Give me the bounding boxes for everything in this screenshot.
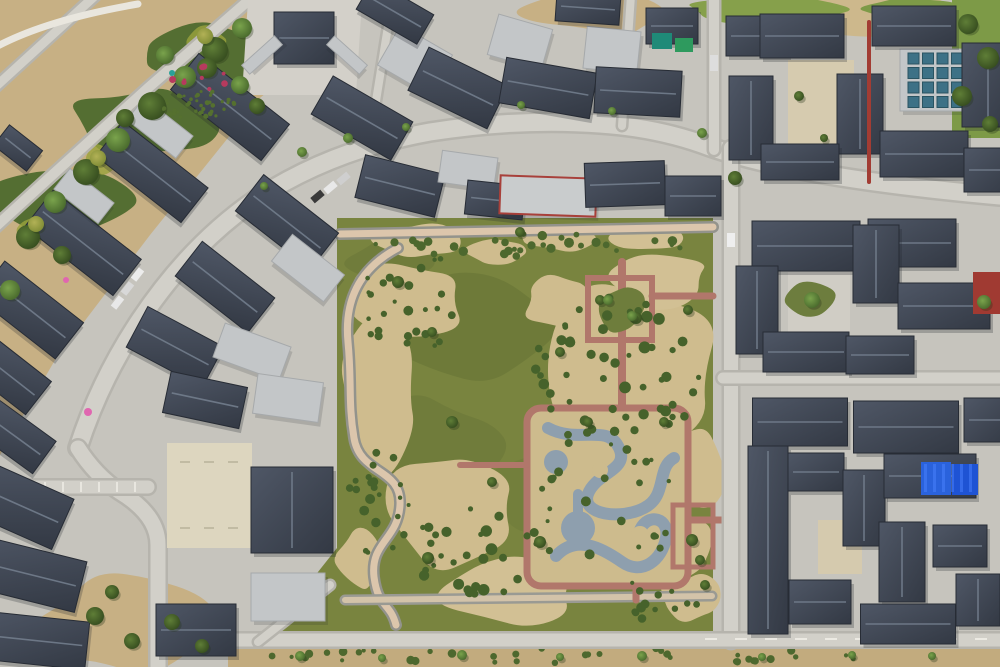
dumpster-green	[675, 38, 693, 52]
park-shrubs	[587, 350, 596, 359]
tree	[695, 555, 705, 565]
skylight-grid	[952, 53, 963, 64]
tree	[758, 653, 766, 661]
nursery-rows	[162, 106, 166, 110]
maze-shrubs	[662, 530, 669, 537]
park-shrubs	[463, 552, 471, 560]
tree	[848, 651, 856, 659]
park-shrubs	[432, 531, 439, 538]
aerial-photograph-town-park	[0, 0, 1000, 667]
garden-bushes-north	[564, 238, 574, 248]
hall-flat-red-trim	[499, 175, 596, 216]
roadside-shrubs-bottom	[734, 658, 741, 665]
park-shrubs	[653, 313, 665, 325]
nursery-rows	[232, 101, 236, 105]
tree	[487, 477, 497, 487]
park-shrubs	[535, 345, 543, 353]
maze-island	[631, 526, 649, 544]
park-shrubs	[530, 528, 539, 537]
park-shrubs	[424, 523, 433, 532]
skylight-grid	[937, 68, 948, 79]
tree	[422, 552, 434, 564]
park-shrubs	[471, 590, 479, 598]
park-shrubs	[638, 614, 647, 623]
skylight-grid	[923, 68, 934, 79]
skylight-grid	[908, 53, 919, 64]
park-shrubs	[693, 601, 700, 608]
tree	[164, 614, 180, 630]
tree	[977, 47, 999, 69]
park-shrubs	[648, 344, 655, 351]
park-shrubs	[375, 332, 383, 340]
skylight-grid	[937, 97, 948, 108]
garden-bushes-north	[527, 241, 535, 249]
roadside-shrubs-bottom	[514, 658, 520, 664]
park-shrubs	[365, 276, 370, 281]
pink-umbrella	[63, 277, 69, 283]
maze-shrubs	[610, 427, 619, 436]
roadside-shrubs-bottom	[340, 658, 344, 662]
roadside-shrubs-bottom	[552, 660, 558, 666]
maze-shrubs	[547, 506, 552, 511]
garden-bushes-north	[592, 238, 601, 247]
skylight-grid	[908, 97, 919, 108]
tree	[515, 227, 525, 237]
park-shrubs	[403, 306, 413, 316]
park-shrubs	[696, 375, 701, 380]
maze-shrubs	[581, 496, 591, 506]
roof-top-edge	[555, 0, 621, 25]
tree	[90, 150, 106, 166]
tree	[260, 182, 268, 190]
park-shrubs	[636, 587, 644, 595]
park-shrubs	[404, 340, 411, 347]
garden-bushes-north	[450, 242, 459, 251]
park-shrubs	[499, 554, 507, 562]
nursery-rows	[198, 111, 202, 115]
roadside-shrubs-bottom	[735, 653, 740, 658]
tree	[952, 86, 972, 106]
park-shrubs	[486, 543, 498, 555]
park-shrubs	[610, 358, 619, 367]
park-shrubs	[556, 335, 566, 345]
tree	[608, 107, 616, 115]
park-shrubs	[619, 382, 631, 394]
park-shrubs	[657, 405, 665, 413]
roadside-shrubs-bottom	[745, 656, 752, 663]
park-shrubs	[371, 518, 380, 527]
park-shrubs	[626, 353, 631, 358]
park-shrubs	[353, 486, 361, 494]
park-shrubs	[672, 606, 678, 612]
roadside-shrubs-bottom	[597, 651, 603, 657]
nursery-rows	[172, 108, 177, 113]
park-shrubs	[655, 591, 662, 598]
tree	[197, 28, 213, 44]
maze-shrubs	[623, 445, 632, 454]
tree	[659, 417, 669, 427]
park-shrubs	[583, 428, 591, 436]
park-shrubs	[400, 531, 407, 538]
nursery-rows	[201, 107, 205, 111]
park-shrubs	[368, 331, 374, 337]
maze-shrubs	[609, 442, 613, 446]
plaza-west	[167, 443, 252, 548]
park-shrubs	[630, 581, 634, 585]
tree	[820, 134, 828, 142]
tree	[728, 171, 742, 185]
roadside-shrubs-bottom	[585, 651, 591, 657]
park-shrubs	[661, 372, 671, 382]
park-shrubs	[372, 449, 380, 457]
tree	[697, 128, 707, 138]
tree	[232, 18, 252, 38]
flower-bushes	[222, 72, 226, 76]
garden-bushes-north	[668, 236, 678, 246]
skylight-grid	[923, 97, 934, 108]
garden-bushes-north	[546, 244, 555, 253]
tree	[295, 651, 305, 661]
tree	[637, 651, 647, 661]
park-shrubs	[546, 547, 553, 554]
park-shrubs	[609, 405, 617, 413]
garden-bushes-north	[459, 247, 468, 256]
garden-bushes-north	[614, 248, 619, 253]
park-shrubs	[562, 322, 568, 328]
tree	[378, 654, 386, 662]
skylight-grid	[908, 82, 919, 93]
roadside-shrubs-bottom	[356, 649, 362, 655]
tree	[106, 128, 130, 152]
nursery-rows	[221, 100, 224, 103]
roadside-shrubs-bottom	[269, 653, 276, 660]
park-shrubs	[380, 279, 387, 286]
nursery-rows	[169, 112, 173, 116]
garden-bushes-north	[374, 242, 378, 246]
tree	[683, 305, 693, 315]
flower-bushes	[207, 87, 211, 91]
roadside-shrubs-bottom	[411, 657, 419, 665]
tree	[0, 280, 20, 300]
park-shrubs	[366, 474, 372, 480]
nursery-rows	[180, 107, 183, 110]
roadside-shrubs-bottom	[752, 657, 759, 664]
nursery-rows	[186, 102, 190, 106]
park-shrubs	[680, 412, 689, 421]
maze-shrubs	[631, 459, 637, 465]
tree	[446, 416, 458, 428]
roadside-shrubs-bottom	[371, 648, 377, 654]
flower-bushes	[201, 63, 207, 69]
tree	[427, 327, 437, 337]
tree	[583, 417, 593, 427]
park-shrubs	[689, 388, 697, 396]
nursery-rows	[200, 90, 203, 93]
park-shrubs	[398, 496, 402, 500]
park-shrubs	[547, 405, 554, 412]
park-shrubs	[448, 311, 456, 319]
park-shrubs	[494, 512, 503, 521]
garden-bushes-north	[409, 237, 417, 245]
park-shrubs	[427, 540, 434, 547]
roadside-shrubs-bottom	[492, 660, 497, 665]
park-shrubs	[432, 258, 436, 262]
tree	[231, 76, 249, 94]
flat-roof	[251, 573, 325, 621]
flower-bushes	[221, 80, 228, 87]
nursery-rows	[208, 111, 213, 116]
park-shrubs	[453, 579, 464, 590]
park-shrubs	[407, 503, 411, 507]
garden-bushes-north	[651, 237, 658, 244]
nursery-rows	[165, 99, 168, 102]
tree	[297, 147, 307, 157]
garden-bushes-north	[538, 231, 547, 240]
skylight-grid	[937, 82, 948, 93]
park-shrubs	[622, 414, 629, 421]
aerial-photo-stage	[0, 0, 1000, 667]
maze-shrubs	[564, 431, 572, 439]
park-shrubs	[632, 609, 640, 617]
tree	[195, 639, 209, 653]
park-shrubs	[412, 328, 420, 336]
park-shrubs	[563, 372, 569, 378]
tree	[402, 123, 410, 131]
tree	[555, 347, 565, 357]
garden-bushes-north	[500, 250, 509, 259]
park-shrubs	[353, 478, 359, 484]
park-shrubs	[600, 375, 607, 382]
maze-shrubs	[554, 467, 563, 476]
skylight-grid	[923, 82, 934, 93]
park-shrubs	[576, 306, 583, 313]
park-shrubs	[423, 307, 428, 312]
flat-roof	[583, 26, 641, 73]
park-shrubs	[441, 527, 451, 537]
nursery-rows	[211, 103, 216, 108]
maze-shrubs	[636, 479, 643, 486]
tree	[343, 133, 353, 143]
park-shrubs	[640, 384, 647, 391]
tree	[982, 116, 998, 132]
scene-root	[0, 0, 1000, 667]
park-shrubs	[405, 281, 414, 290]
maze-shrubs	[617, 517, 626, 526]
tree	[928, 652, 936, 660]
roadside-shrubs-bottom	[324, 650, 330, 656]
tree	[116, 109, 134, 127]
flower-bushes	[200, 76, 204, 80]
maze-shrubs	[636, 545, 641, 550]
tree	[53, 246, 71, 264]
park-shrubs	[643, 601, 647, 605]
tree	[138, 92, 166, 120]
park-shrubs	[468, 506, 473, 511]
park-shrubs	[390, 545, 396, 551]
park-shrubs	[346, 484, 354, 492]
skylight-grid	[937, 53, 948, 64]
nursery-rows	[196, 93, 200, 97]
pink-umbrella	[84, 408, 92, 416]
park-shrubs	[478, 554, 488, 564]
park-shrubs	[513, 575, 522, 584]
teal-feature	[169, 70, 175, 76]
park-shrubs	[669, 589, 674, 594]
tree	[686, 534, 698, 546]
garden-bushes-north	[578, 243, 584, 249]
tree	[249, 98, 265, 114]
park-shrubs	[602, 310, 612, 320]
maze-shrubs	[585, 549, 595, 559]
garden-bushes-north	[390, 238, 398, 246]
park-shrubs	[566, 336, 575, 345]
park-shrubs	[365, 494, 375, 504]
nursery-rows	[189, 97, 193, 101]
nursery-rows	[179, 95, 183, 99]
park-shrubs	[398, 482, 403, 487]
nursery-rows	[210, 91, 213, 94]
maze-shrubs	[653, 534, 659, 540]
maze-island	[564, 474, 576, 486]
park-shrubs	[393, 300, 397, 304]
park-shrubs	[669, 414, 675, 420]
roadside-shrubs-bottom	[793, 654, 798, 659]
roadside-shrubs-bottom	[844, 653, 848, 657]
park-shrubs	[370, 462, 377, 469]
tree	[28, 216, 44, 232]
nursery-rows	[179, 115, 182, 118]
park-shrubs	[500, 588, 507, 595]
maze-shrubs	[667, 479, 671, 483]
nursery-rows	[203, 114, 208, 119]
tree	[700, 580, 710, 590]
garden-bushes-north	[574, 232, 580, 238]
park-shrubs	[669, 401, 677, 409]
park-shrubs	[684, 600, 690, 606]
tree	[603, 295, 613, 305]
tree	[556, 653, 564, 661]
park-shrubs	[599, 353, 609, 363]
roadside-shrubs-bottom	[290, 655, 294, 659]
park-shrubs	[478, 532, 483, 537]
park-shrubs	[395, 514, 401, 520]
maze-shrubs	[539, 486, 545, 492]
roadside-shrubs-bottom	[427, 649, 432, 654]
park-shrubs	[359, 506, 369, 516]
park-shrubs	[642, 301, 650, 309]
garden-bushes-north	[501, 239, 509, 247]
skylight-grid	[923, 53, 934, 64]
nursery-rows	[166, 102, 169, 105]
garden-bushes-north	[513, 252, 521, 260]
garden-bushes-north	[492, 237, 499, 244]
park-shrubs	[377, 492, 382, 497]
blue-tarp	[952, 464, 978, 495]
truck	[710, 55, 718, 71]
tree	[156, 46, 174, 64]
tree	[977, 295, 991, 309]
skylight-grid	[908, 68, 919, 79]
park-shrubs	[404, 332, 412, 340]
park-shrubs	[363, 548, 369, 554]
park-shrubs	[478, 584, 490, 596]
garden-bushes-north	[603, 242, 610, 249]
park-shrubs	[438, 256, 444, 262]
car	[727, 233, 735, 247]
roadside-shrubs-bottom	[664, 650, 671, 657]
park-shrubs	[567, 399, 573, 405]
tree	[124, 633, 140, 649]
nursery-rows	[195, 99, 198, 102]
garden-bushes-north	[540, 242, 546, 248]
maze-shrubs	[630, 426, 638, 434]
nursery-rows	[194, 109, 198, 113]
garden-bushes-north	[517, 247, 523, 253]
park-shrubs	[432, 343, 437, 348]
maze-shrubs	[642, 458, 650, 466]
park-shrubs	[546, 389, 555, 398]
park-shrubs	[381, 311, 387, 317]
nursery-rows	[199, 104, 203, 108]
maze-shrubs	[565, 439, 573, 447]
flat-roof	[253, 374, 324, 423]
tree	[392, 276, 404, 288]
nursery-rows	[208, 101, 212, 105]
park-shrubs	[450, 559, 456, 565]
park-shrubs	[390, 454, 398, 462]
tree	[86, 607, 104, 625]
tree	[627, 311, 637, 321]
garden-bushes-north	[431, 251, 438, 258]
roadside-shrubs-bottom	[512, 651, 519, 658]
roadside-shrubs-bottom	[767, 655, 775, 663]
nursery-rows	[222, 108, 225, 111]
tree	[517, 101, 525, 109]
roadside-shrubs-bottom	[448, 649, 457, 658]
park-shrubs	[438, 291, 445, 298]
garden-bushes-north	[559, 235, 565, 241]
park-shrubs	[539, 379, 550, 390]
tree	[105, 585, 119, 599]
tree	[44, 191, 66, 213]
roadside-shrubs-bottom	[362, 648, 366, 652]
flower-bushes	[183, 78, 187, 82]
garden-bushes-north	[677, 245, 682, 250]
park-shrubs	[435, 306, 441, 312]
skylight-grid	[952, 68, 963, 79]
park-shrubs	[438, 553, 444, 559]
park-shrubs	[542, 353, 550, 361]
park-shrubs	[638, 409, 648, 419]
park-shrubs	[417, 264, 426, 273]
tree	[804, 292, 820, 308]
nursery-rows	[183, 95, 186, 98]
park-shrubs	[598, 324, 608, 334]
park-shrubs	[524, 532, 531, 539]
dumpster-teal	[652, 33, 672, 49]
flower-bushes	[169, 76, 176, 83]
maze-shrubs	[547, 475, 555, 483]
nursery-rows	[227, 98, 231, 102]
park-shrubs	[678, 337, 688, 347]
tree	[457, 650, 467, 660]
maze-shrubs	[546, 519, 550, 523]
park-shrubs	[436, 338, 443, 345]
park-shrubs	[537, 372, 544, 379]
park-shrubs	[652, 607, 658, 613]
roadside-shrubs-bottom	[490, 653, 497, 660]
tree	[958, 14, 978, 34]
